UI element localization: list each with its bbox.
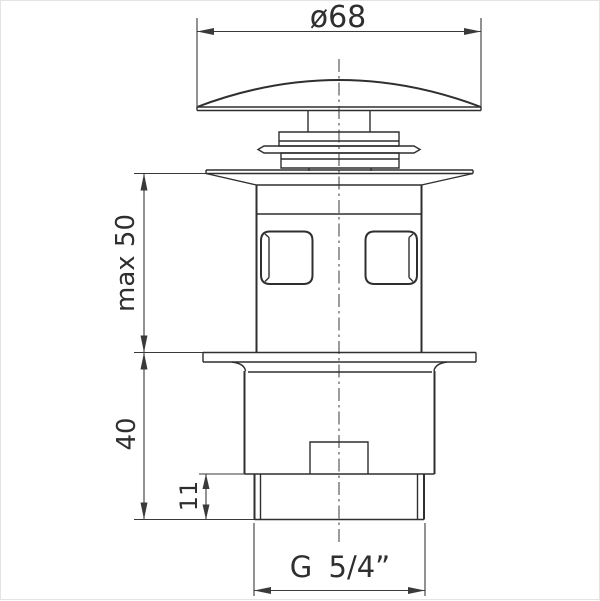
bottom-flange (134, 353, 476, 373)
max-height-label: max 50 (111, 214, 141, 312)
thread-length-label: 11 (175, 481, 203, 512)
technical-drawing-canvas: ø68 max 50 40 11 G 5/4” (0, 0, 600, 600)
dimension-thread-length: 11 (175, 474, 210, 520)
diameter-label: ø68 (310, 1, 367, 35)
overflow-window-right (366, 232, 418, 285)
dimension-body-height: 40 (112, 353, 148, 520)
drain-valve-section-drawing: ø68 max 50 40 11 G 5/4” (1, 1, 600, 601)
top-flange (134, 170, 473, 185)
lock-nut-lower (281, 153, 399, 168)
dimension-max-height: max 50 (111, 174, 148, 353)
body-height-label: 40 (112, 417, 142, 450)
thread-size-label: G 5/4” (290, 550, 390, 584)
overflow-window-left (261, 232, 313, 285)
